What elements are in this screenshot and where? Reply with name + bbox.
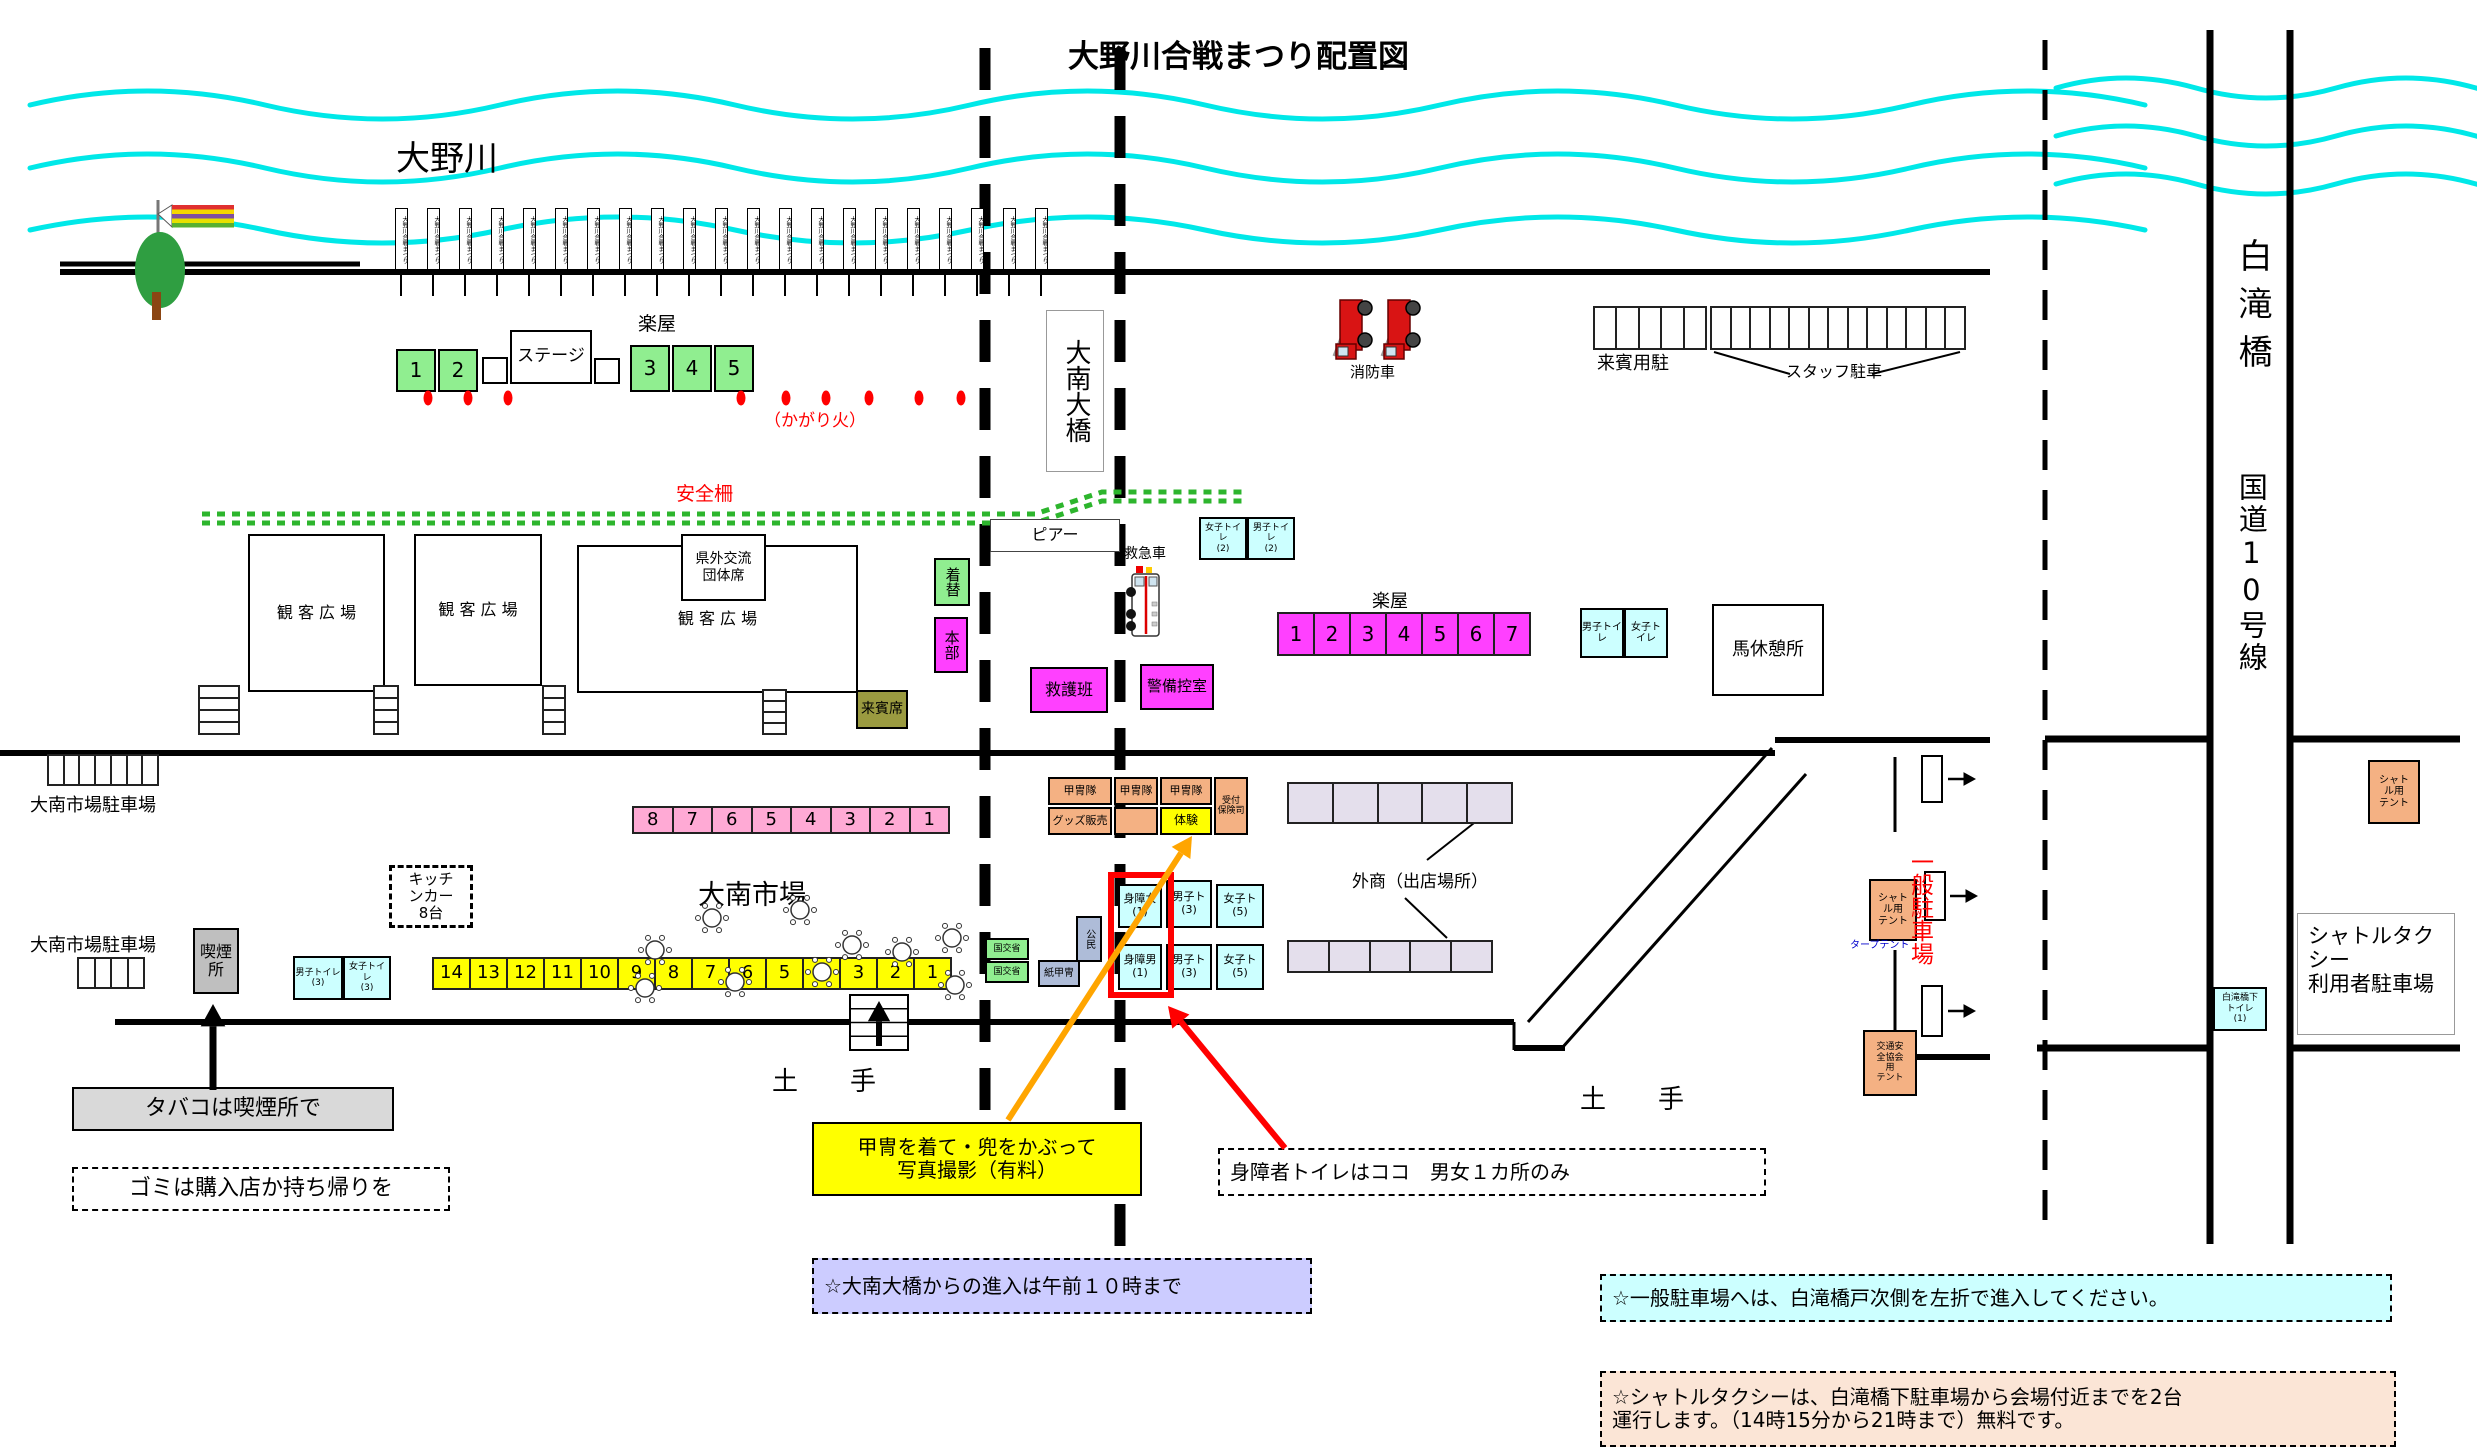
kitchen-car: キッチ ンカー 8台	[389, 865, 473, 928]
m-toilet-3: 男子トイレ (3)	[293, 956, 343, 1000]
dote-left-label: 土 手	[772, 1068, 876, 1098]
steps-4-cell	[763, 723, 786, 734]
keibi-room: 警備控室	[1140, 664, 1214, 710]
nobori-banner: 大野川合戦まつり	[971, 208, 984, 270]
accessible-toilet-note: 身障者トイレはココ 男女１カ所のみ	[1218, 1148, 1766, 1196]
kokkosho-1: 国交省	[985, 938, 1029, 960]
ichiba-stall-row-yellow-cell: 9	[617, 957, 656, 990]
staff-parking-grid-cell	[1750, 307, 1770, 349]
steps-1-cell	[199, 710, 239, 722]
stage-box-2: 2	[438, 349, 478, 392]
nobori-banner-pole	[432, 270, 434, 296]
nobori-banner: 大野川合戦まつり	[587, 208, 600, 270]
gakuya-main-row-cell: 5	[1421, 612, 1459, 656]
ichiba-parking-grid-1	[47, 754, 159, 786]
w-toilet-2: 女子トイレ (2)	[1199, 517, 1247, 560]
ichiba-stall-row-pink-cell: 1	[909, 806, 951, 834]
ichiba-stall-row-pink-cell: 2	[869, 806, 911, 834]
steps-1-cell	[199, 722, 239, 734]
gakuya-main-label: 楽屋	[1372, 592, 1408, 613]
kacchu-sub	[1114, 807, 1158, 835]
ichiba-stall-row-yellow-cell: 10	[580, 957, 619, 990]
steps-4-cell	[763, 690, 786, 701]
ichiba-stall-row-yellow-cell: 8	[654, 957, 693, 990]
nobori-banner: 大野川合戦まつり	[747, 208, 760, 270]
nobori-banner: 大野川合戦まつり	[715, 208, 728, 270]
steps-4-cell	[763, 712, 786, 723]
shuttle-tent-right: シャト ル用 テント	[2368, 760, 2420, 824]
dote-right-label: 土 手	[1580, 1086, 1684, 1116]
nobori-banner: 大野川合戦まつり	[491, 208, 504, 270]
nobori-banner: 大野川合戦まつり	[1035, 208, 1048, 270]
tarp-tent-label: タープテント	[1850, 940, 1909, 952]
stage: ステージ	[510, 330, 592, 384]
ippan-parking-label: 一般駐車場	[1906, 850, 1932, 965]
staff-parking-grid-cell	[1731, 307, 1751, 349]
ichiba-stall-row-yellow-cell: 13	[469, 957, 508, 990]
nobori-banner: 大野川合戦まつり	[1003, 208, 1016, 270]
goods-sale: グッズ販売	[1048, 807, 1112, 835]
ichiba-parking-label-1: 大南市場駐車場	[30, 796, 156, 817]
steps-2-cell	[374, 686, 398, 698]
gakuya-stage-3: 3	[630, 345, 670, 392]
steps-3-cell	[543, 686, 565, 698]
ichiba-parking-grid-2-cell	[78, 958, 95, 988]
kyugohan: 救護班	[1030, 667, 1108, 713]
staff-parking-grid-cell	[1906, 307, 1926, 349]
exit-gate-3	[1921, 985, 1943, 1037]
nobori-banner-pole	[784, 270, 786, 296]
accessible-toilet-highlight	[1108, 872, 1174, 998]
gaisho-stall-row-2-cell	[1410, 941, 1451, 972]
gaisho-label: 外商（出店場所）	[1352, 873, 1488, 893]
ichiba-stall-row-yellow-cell: 7	[691, 957, 730, 990]
raihin-parking-grid-cell	[1661, 307, 1683, 349]
nobori-banner-pole	[496, 270, 498, 296]
nobori-banner: 大野川合戦まつり	[395, 208, 408, 270]
steps-2	[373, 685, 399, 735]
kyukyusha-label: 救急車	[1124, 546, 1166, 562]
staff-parking-grid	[1710, 306, 1966, 350]
gaisho-stall-row-2-cell	[1370, 941, 1411, 972]
ichiba-parking-grid-1-cell	[127, 755, 143, 785]
ichiba-label: 大南市場	[698, 880, 806, 911]
staff-parking-grid-cell	[1711, 307, 1731, 349]
nobori-banner-pole	[944, 270, 946, 296]
ichiba-stall-row-pink-cell: 5	[751, 806, 793, 834]
raihin-parking-grid-cell	[1616, 307, 1638, 349]
kokkosho-2: 国交省	[985, 961, 1029, 983]
nobori-banner: 大野川合戦まつり	[459, 208, 472, 270]
nobori-banner: 大野川合戦まつり	[811, 208, 824, 270]
ichiba-stall-row-yellow-cell: 4	[802, 957, 841, 990]
steps-1	[198, 685, 240, 735]
gakuya-stage-4: 4	[672, 345, 712, 392]
ichiba-parking-grid-2-cell	[95, 958, 112, 988]
nobori-banner: 大野川合戦まつり	[779, 208, 792, 270]
gakuya-main-row-cell: 1	[1277, 612, 1315, 656]
nobori-banner-pole	[1040, 270, 1042, 296]
gakuya-main-row-cell: 7	[1493, 612, 1531, 656]
kigae: 着替	[934, 558, 970, 606]
garbage-note: ゴミは購入店か持ち帰りを	[72, 1167, 450, 1211]
staff-parking-grid-cell	[1926, 307, 1946, 349]
gaisho-stall-row-1-cell	[1467, 783, 1512, 823]
nobori-banner: 大野川合戦まつり	[523, 208, 536, 270]
nobori-banner-pole	[752, 270, 754, 296]
photo-note: 甲冑を着て・兜をかぶって 写真撮影（有料）	[812, 1122, 1142, 1196]
staff-parking-grid-cell	[1809, 307, 1829, 349]
staff-parking-pointer-2	[1872, 352, 1960, 374]
gakuya-main-row-cell: 4	[1385, 612, 1423, 656]
gakuya-main-row-cell: 6	[1457, 612, 1495, 656]
shuttle-note: ☆シャトルタクシーは、白滝橋下駐車場から会場付近までを2台 運行します。（14時…	[1600, 1371, 2396, 1447]
taiken: 体験	[1160, 807, 1212, 835]
steps-4	[762, 689, 787, 735]
nobori-banner: 大野川合戦まつり	[907, 208, 920, 270]
ichiba-parking-grid-2	[77, 957, 145, 989]
staff-parking-grid-cell	[1789, 307, 1809, 349]
gakuya-main-row-cell: 2	[1313, 612, 1351, 656]
ichiba-stall-row-pink-cell: 8	[632, 806, 674, 834]
ichiba-stall-row-yellow-cell: 5	[765, 957, 804, 990]
raihinseki: 来賓席	[856, 690, 908, 729]
parking-note: ☆一般駐車場へは、白滝橋戸次側を左折で進入してください。	[1600, 1274, 2392, 1322]
steps-4-cell	[763, 701, 786, 712]
ichiba-stall-row-pink-cell: 4	[790, 806, 832, 834]
nobori-banner-pole	[464, 270, 466, 296]
ichiba-parking-grid-2-cell	[111, 958, 128, 988]
ichiba-parking-grid-1-cell	[79, 755, 95, 785]
nobori-banner-pole	[848, 270, 850, 296]
river-name: 大野川	[396, 140, 498, 179]
kacchutai-1: 甲冑隊	[1048, 777, 1112, 805]
kacchutai-3: 甲冑隊	[1160, 777, 1212, 805]
nobori-banner: 大野川合戦まつり	[843, 208, 856, 270]
nobori-banner-pole	[400, 270, 402, 296]
staff-parking-grid-cell	[1770, 307, 1790, 349]
gaisho-stall-row-2-cell	[1329, 941, 1370, 972]
steps-3-cell	[543, 722, 565, 734]
stage-box-1: 1	[396, 349, 436, 392]
gakuya-stage-5: 5	[714, 345, 754, 392]
staff-parking-label: スタッフ駐車	[1786, 363, 1882, 381]
festival-layout-map: 大野川合戦まつり配置図 12ステージ345観 客 広 場観 客 広 場観 客 広…	[0, 0, 2477, 1451]
nobori-banner-pole	[688, 270, 690, 296]
gaisho-pointer-2	[1405, 898, 1447, 938]
ramp-edge-2	[1562, 774, 1806, 1048]
steps-3-cell	[543, 710, 565, 722]
staff-parking-grid-cell	[1867, 307, 1887, 349]
gaisho-stall-row-1	[1287, 782, 1513, 824]
raihin-parking-label: 来賓用駐	[1597, 354, 1669, 375]
nobori-banner-pole	[624, 270, 626, 296]
ichiba-stall-row-yellow-cell: 6	[728, 957, 767, 990]
steps-2-cell	[374, 698, 398, 710]
nobori-banner: 大野川合戦まつり	[651, 208, 664, 270]
route10-label: 国道10号線	[2234, 472, 2267, 674]
steps-1-cell	[199, 686, 239, 698]
stage-left-wing	[482, 357, 508, 384]
staff-parking-grid-cell	[1945, 307, 1965, 349]
ichiba-stall-row-pink-cell: 6	[711, 806, 753, 834]
gaisho-stall-row-1-cell	[1422, 783, 1467, 823]
tobacco-note: タバコは喫煙所で	[72, 1087, 394, 1131]
steps-2-cell	[374, 710, 398, 722]
kotsu-anzen-tent: 交通安 全協会 用 テント	[1863, 1030, 1917, 1096]
nobori-banner-pole	[592, 270, 594, 296]
bridge-label: 大南大橋	[1046, 310, 1104, 472]
gaisho-stall-row-1-cell	[1288, 783, 1333, 823]
uma-rest: 馬休憩所	[1712, 604, 1824, 696]
ichiba-parking-grid-1-cell	[64, 755, 80, 785]
gaisho-stall-row-2	[1287, 940, 1493, 973]
shuttle-taxi-parking: シャトルタクシー 利用者駐車場	[2297, 913, 2455, 1035]
map-background-layer	[0, 0, 2477, 1451]
smoking-area: 喫煙 所	[193, 928, 239, 994]
plaza-1: 観 客 広 場	[248, 534, 385, 692]
steps-3	[542, 685, 566, 735]
gaisho-stall-row-2-cell	[1288, 941, 1329, 972]
nobori-banner-pole	[528, 270, 530, 296]
uketsuke: 受付 保険司	[1214, 777, 1248, 835]
stage-right-wing	[594, 358, 620, 384]
ichiba-parking-grid-2-cell	[128, 958, 145, 988]
page-title: 大野川合戦まつり配置図	[1068, 40, 1409, 76]
ichiba-parking-label-2: 大南市場駐車場	[30, 936, 156, 957]
nobori-banner: 大野川合戦まつり	[939, 208, 952, 270]
ichiba-parking-grid-1-cell	[95, 755, 111, 785]
gakuya-main-row-cell: 3	[1349, 612, 1387, 656]
nobori-banner-pole	[656, 270, 658, 296]
kagaribi-label: （かがり火）	[764, 412, 866, 432]
shirataki-toilet: 白滝橋下 トイレ (1)	[2213, 987, 2267, 1031]
raihin-parking-grid-cell	[1594, 307, 1616, 349]
gaisho-stall-row-2-cell	[1451, 941, 1492, 972]
w-toilet-5-upper: 女子ト (5)	[1216, 884, 1264, 928]
kacchutai-2: 甲冑隊	[1114, 777, 1158, 805]
nobori-banner-pole	[976, 270, 978, 296]
staff-parking-grid-cell	[1887, 307, 1907, 349]
steps-1-cell	[199, 698, 239, 710]
gaisho-stall-row-1-cell	[1333, 783, 1378, 823]
raihin-parking-grid	[1593, 306, 1707, 350]
staff-parking-pointer-1	[1714, 352, 1790, 374]
ichiba-stall-row-yellow-cell: 12	[506, 957, 545, 990]
kami-kacchu: 紙甲冑	[1038, 960, 1080, 987]
ichiba-parking-grid-1-cell	[142, 755, 158, 785]
ichiba-stall-row-pink-cell: 3	[830, 806, 872, 834]
m-toilet: 男子トイ レ	[1580, 608, 1624, 658]
ichiba-stall-row-yellow-cell: 2	[876, 957, 915, 990]
ramp-edge-1	[1528, 748, 1772, 1022]
nobori-banner: 大野川合戦まつり	[555, 208, 568, 270]
honbu: 本部	[934, 617, 968, 673]
exit-gate-1	[1921, 755, 1943, 803]
w-toilet-3: 女子トイレ (3)	[343, 956, 391, 1000]
staff-parking-grid-cell	[1848, 307, 1868, 349]
nobori-banner-pole	[1008, 270, 1010, 296]
steps-3-cell	[543, 698, 565, 710]
ichiba-stall-row-pink-cell: 7	[672, 806, 714, 834]
w-toilet: 女子ト イレ	[1624, 608, 1668, 658]
ichiba-stall-row-yellow-cell: 14	[432, 957, 471, 990]
gaisho-stall-row-1-cell	[1378, 783, 1423, 823]
komin: 公民	[1076, 916, 1102, 962]
staff-parking-grid-cell	[1828, 307, 1848, 349]
pier: ピアー	[990, 519, 1120, 552]
shirataki-bashi-label: 白滝橋	[2232, 238, 2271, 382]
anzen-saku-label: 安全柵	[676, 484, 733, 506]
raihin-parking-grid-cell	[1684, 307, 1706, 349]
steps-2-cell	[374, 722, 398, 734]
w-toilet-5-lower: 女子ト (5)	[1216, 944, 1264, 990]
nobori-banner-pole	[912, 270, 914, 296]
nobori-banner: 大野川合戦まつり	[683, 208, 696, 270]
bridge-entry-note: ☆大南大橋からの進入は午前１０時まで	[812, 1258, 1312, 1314]
nobori-banner: 大野川合戦まつり	[875, 208, 888, 270]
ichiba-parking-grid-1-cell	[111, 755, 127, 785]
shobosha-label: 消防車	[1350, 364, 1395, 381]
nobori-banner: 大野川合戦まつり	[427, 208, 440, 270]
ichiba-stall-row-yellow-cell: 3	[839, 957, 878, 990]
nobori-banner: 大野川合戦まつり	[619, 208, 632, 270]
nobori-banner-pole	[816, 270, 818, 296]
ichiba-stall-row-yellow-cell: 1	[913, 957, 952, 990]
nobori-banner-pole	[560, 270, 562, 296]
nobori-banner-pole	[720, 270, 722, 296]
gakuya-stage-label: 楽屋	[638, 314, 676, 336]
raihin-parking-grid-cell	[1639, 307, 1661, 349]
ichiba-stall-row-yellow-cell: 11	[543, 957, 582, 990]
nobori-banner-pole	[880, 270, 882, 296]
kengai-seats: 県外交流 団体席	[681, 534, 766, 601]
m-toilet-2: 男子トイレ (2)	[1247, 517, 1295, 560]
ichiba-parking-grid-1-cell	[48, 755, 64, 785]
plaza-2: 観 客 広 場	[414, 534, 542, 686]
